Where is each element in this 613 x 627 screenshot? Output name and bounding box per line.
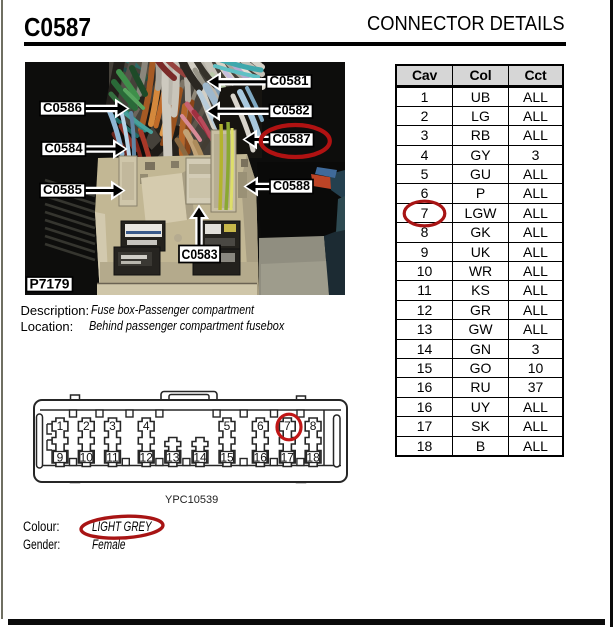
svg-text:15: 15 [220,450,234,464]
svg-text:16: 16 [254,450,268,464]
svg-text:12: 12 [140,450,154,464]
svg-text:P7179: P7179 [30,277,70,292]
svg-text:C0584: C0584 [45,141,84,156]
svg-text:14: 14 [193,450,207,464]
svg-text:8: 8 [310,419,317,433]
svg-text:13: 13 [166,450,180,464]
svg-text:18: 18 [306,450,320,464]
svg-text:C0586: C0586 [43,100,82,115]
svg-text:C0585: C0585 [43,182,82,197]
svg-text:C0588: C0588 [273,178,310,193]
svg-text:9: 9 [57,450,64,464]
svg-text:11: 11 [106,450,119,464]
svg-text:6: 6 [257,419,264,433]
svg-text:C0587: C0587 [273,131,311,146]
svg-text:C0583: C0583 [182,247,218,262]
svg-text:C0581: C0581 [270,73,309,88]
svg-text:C0582: C0582 [273,103,310,118]
svg-text:1: 1 [57,419,64,433]
svg-text:2: 2 [83,419,90,433]
svg-text:17: 17 [281,450,295,464]
svg-text:5: 5 [224,419,231,433]
svg-text:10: 10 [80,450,94,464]
svg-text:3: 3 [109,419,116,433]
svg-text:4: 4 [143,419,150,433]
svg-text:7: 7 [284,419,291,433]
